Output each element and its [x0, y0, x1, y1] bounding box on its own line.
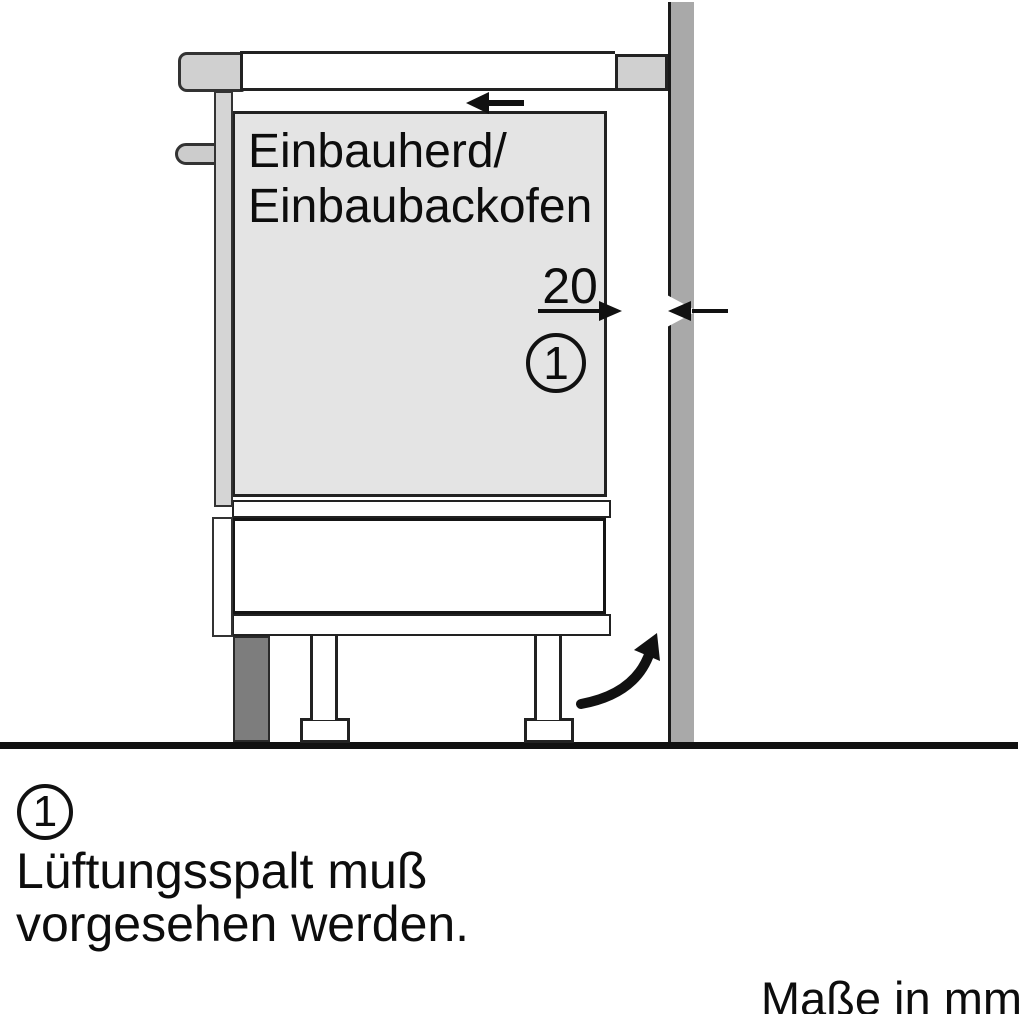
oven-door-handle — [175, 143, 219, 165]
installation-diagram: Einbauherd/ Einbaubackofen 20 1 1 Lüftun… — [0, 0, 1024, 1014]
appliance-label-line2: Einbaubackofen — [248, 179, 604, 234]
cabinet-rail-upper — [232, 500, 611, 518]
drawer-front — [232, 518, 606, 614]
cabinet-rail-lower — [232, 614, 611, 636]
callout-1-badge: 1 — [526, 333, 586, 393]
plinth-panel — [233, 636, 270, 742]
wall — [668, 2, 694, 742]
worktop — [240, 51, 615, 91]
legend-text: Lüftungsspalt muß vorgesehen werden. — [16, 845, 469, 951]
leg-foot-front — [300, 718, 350, 743]
appliance-label-line1: Einbauherd/ — [248, 124, 604, 179]
legend-text-line2: vorgesehen werden. — [16, 898, 469, 951]
cabinet-side-panel — [212, 517, 233, 637]
leg-foot-rear — [524, 718, 574, 743]
oven-door-panel — [214, 91, 233, 507]
leg-rear — [534, 636, 562, 720]
callout-1-number: 1 — [543, 336, 569, 390]
leg-front — [310, 636, 338, 720]
gap-dimension-label: 20 — [534, 261, 606, 311]
legend-text-line1: Lüftungsspalt muß — [16, 845, 469, 898]
airflow-curved-arrow-icon — [581, 633, 660, 704]
worktop-left-edge — [178, 52, 244, 92]
units-note: Maße in mm — [550, 971, 1022, 1014]
legend-callout-1-number: 1 — [33, 787, 57, 837]
worktop-wall-support — [615, 54, 668, 91]
floor-line — [0, 742, 1018, 749]
legend-callout-1-badge: 1 — [17, 784, 73, 840]
